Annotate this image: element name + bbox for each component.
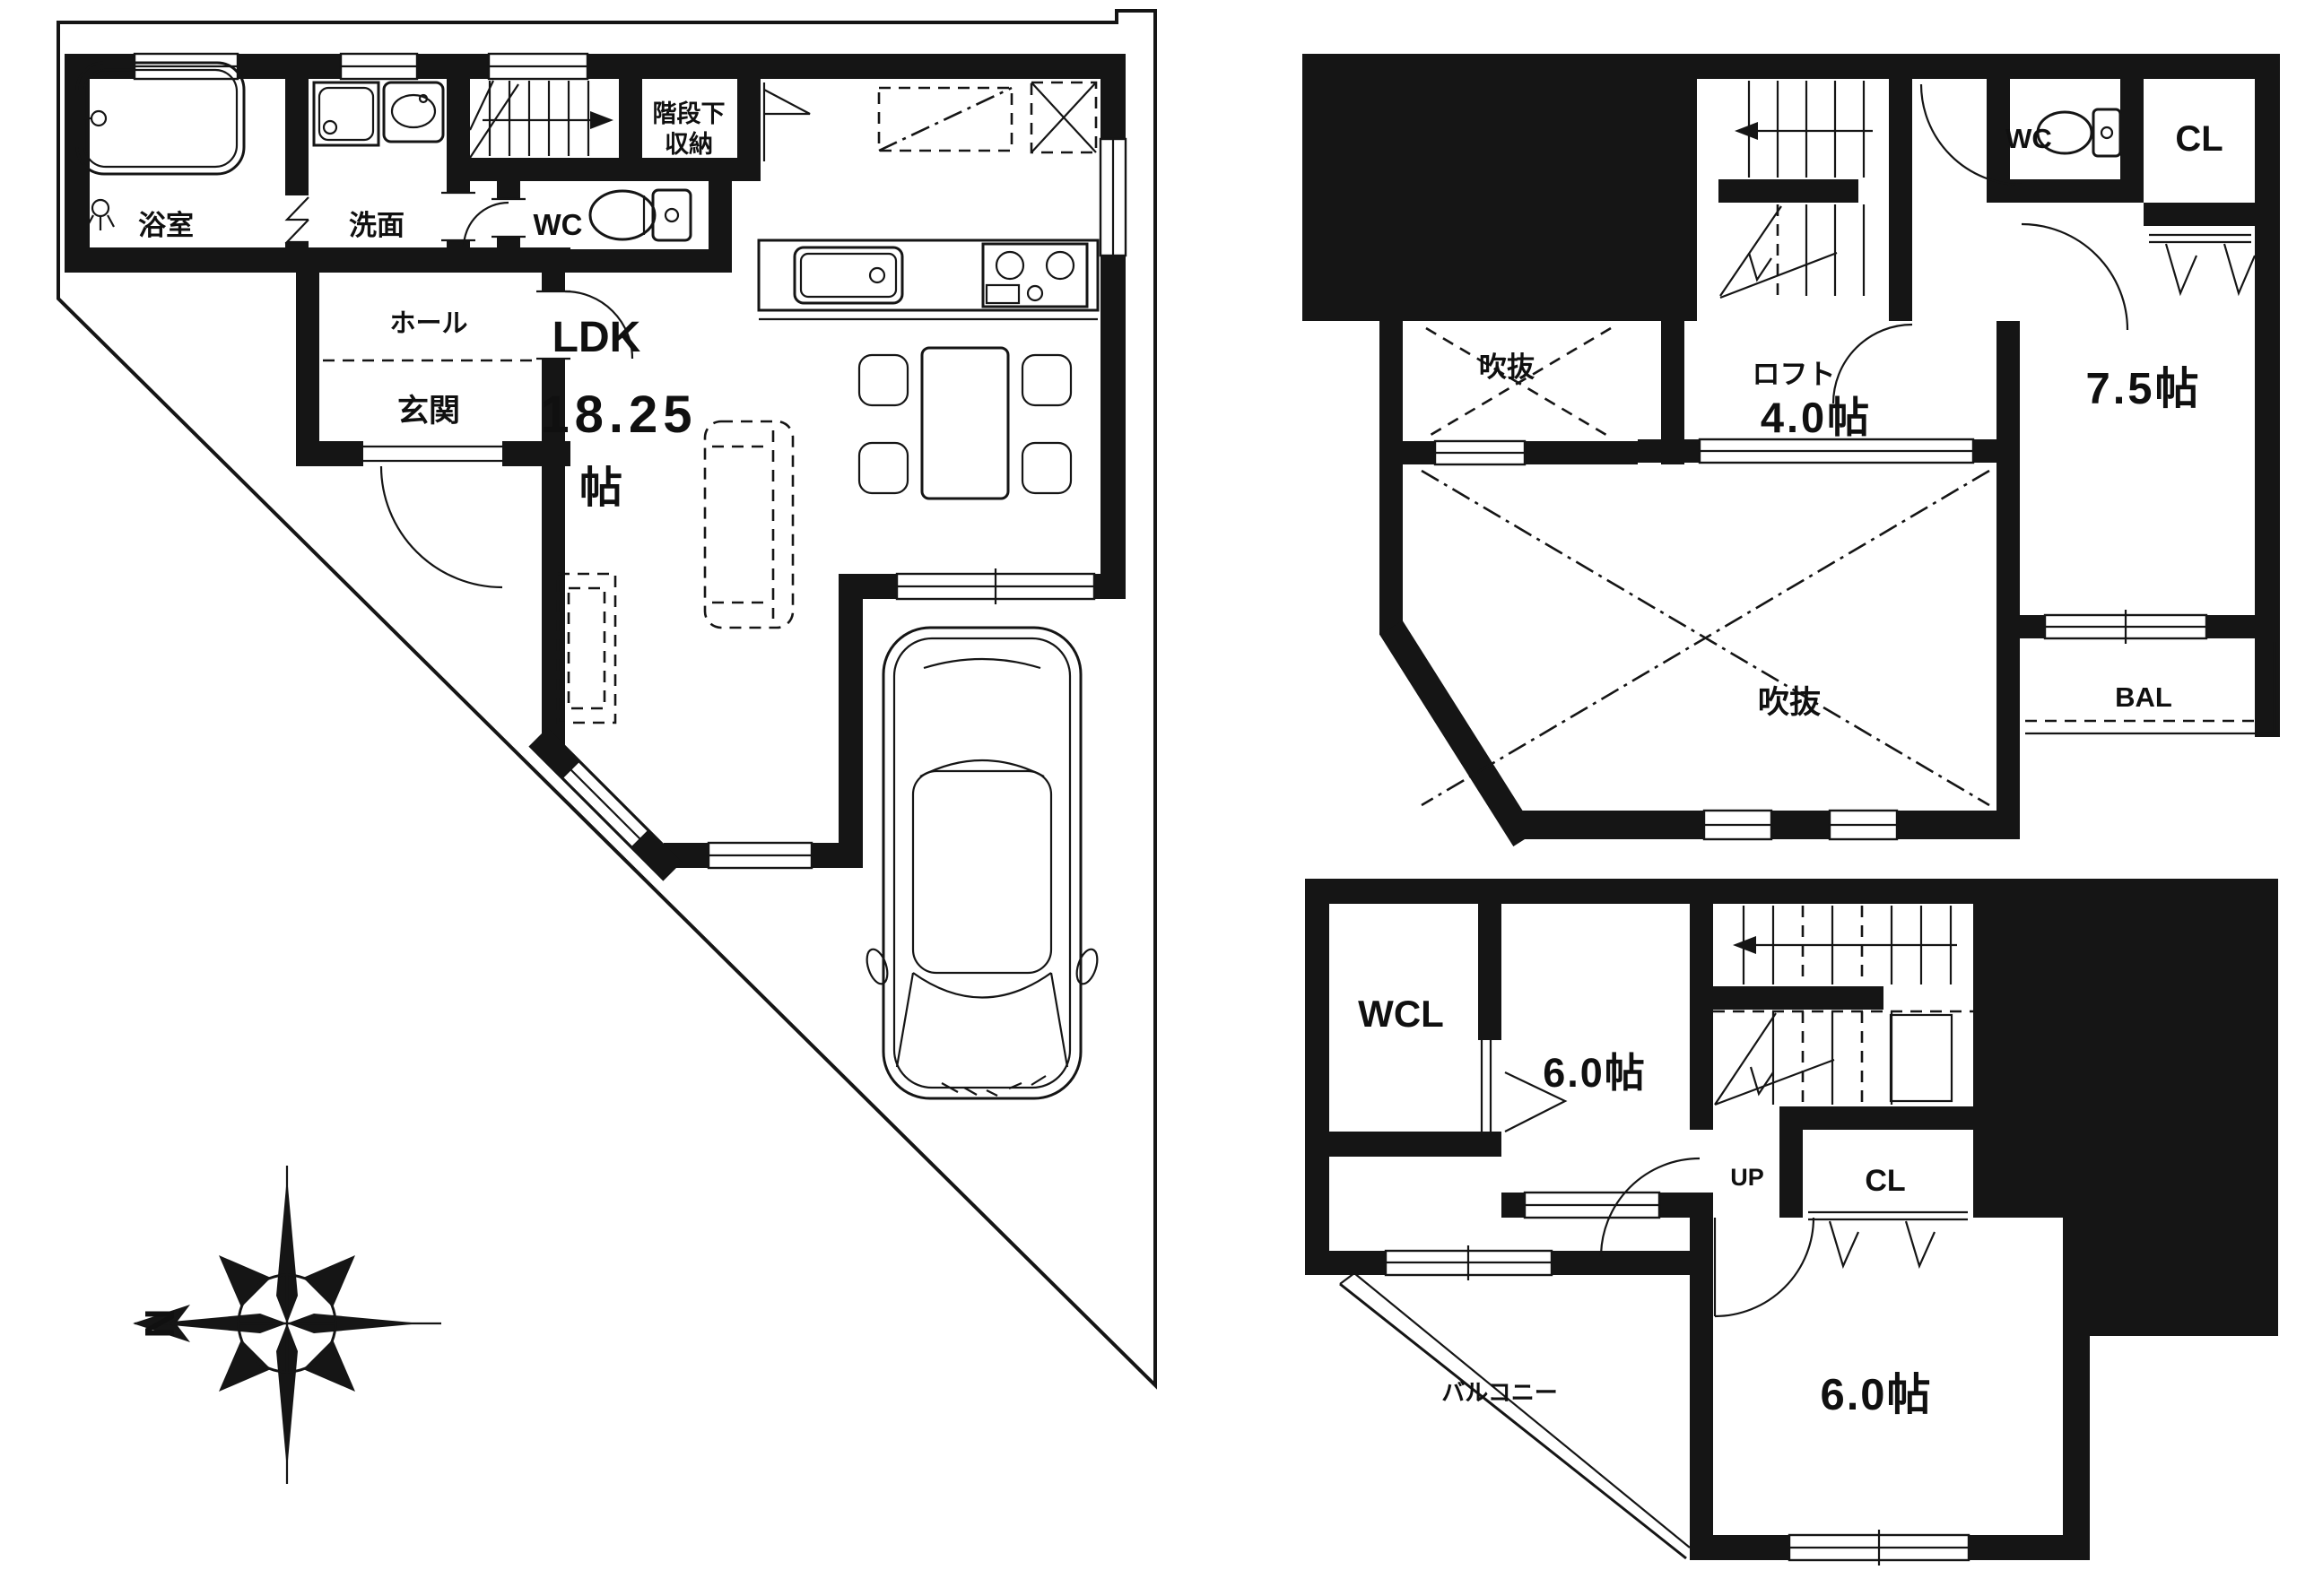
kitchen-counter xyxy=(759,240,1098,319)
site-boundary xyxy=(58,11,1155,1385)
car-top-view xyxy=(863,628,1100,1098)
chair xyxy=(1022,443,1071,493)
window xyxy=(1525,1193,1659,1218)
window xyxy=(1704,811,1771,839)
first-floor-plan: N 浴室 洗面 WC 階段下 収納 ホール 玄関 LDK 18.25 帖 xyxy=(58,11,1155,1484)
room-label-75: 7.5帖 xyxy=(2085,365,2201,413)
room-label-wcl: WCL xyxy=(1358,993,1444,1035)
window xyxy=(562,761,648,847)
void-cross-marks xyxy=(1422,328,1989,805)
room-label-wc: WC xyxy=(534,208,583,241)
solid-black-area xyxy=(1302,54,1697,321)
stairs-1f xyxy=(470,81,613,158)
room-label-cl-2f: CL xyxy=(1865,1164,1905,1198)
second-floor-plan: WCL 6.0帖 UP CL バルコニー 6.0帖 xyxy=(1305,879,2278,1566)
shower-box-icon xyxy=(314,82,378,145)
entrance-door-arc xyxy=(381,466,502,587)
room-label-ldk-unit: 帖 xyxy=(579,464,622,512)
room-label-void-bottom: 吹抜 xyxy=(1758,685,1821,720)
door-arc-room-s xyxy=(1715,1218,1814,1316)
chair xyxy=(1022,355,1071,405)
room-label-void-top: 吹抜 xyxy=(1479,351,1535,383)
upper-cabinet-dashed xyxy=(879,82,1096,152)
window xyxy=(897,568,1094,604)
solid-black-area xyxy=(1973,879,2278,1193)
window xyxy=(1435,441,1525,464)
compass-rose: N xyxy=(133,1166,441,1484)
window xyxy=(135,54,238,79)
window xyxy=(1700,439,1973,463)
window xyxy=(1789,1530,1969,1566)
room-label-loft-size: 4.0帖 xyxy=(1761,394,1872,441)
window xyxy=(489,54,587,79)
window xyxy=(1386,1245,1552,1280)
room-label-6n: 6.0帖 xyxy=(1543,1050,1647,1096)
window xyxy=(341,54,417,79)
doors-loft xyxy=(1833,84,2127,403)
shower-icon xyxy=(87,200,114,230)
room-label-ldk-size: 18.25 xyxy=(540,386,697,444)
dining-table xyxy=(922,348,1008,499)
folding-door-bath xyxy=(287,197,309,242)
vanity-sink-icon xyxy=(384,82,443,142)
room-label-storage-1: 階段下 xyxy=(653,100,726,127)
room-label-balcony: バルコニー xyxy=(1441,1379,1557,1406)
door-arc-room75 xyxy=(2022,224,2127,330)
dining-set xyxy=(859,348,1071,499)
solid-black-area xyxy=(2090,1193,2278,1336)
chamfer-wall xyxy=(1391,628,1525,839)
stair-direction-mark xyxy=(1749,253,1771,280)
door-arc-loft xyxy=(1833,325,1912,403)
room-label-6s: 6.0帖 xyxy=(1820,1371,1932,1419)
room-label-wc-loft: WC xyxy=(2005,123,2052,154)
room-label-up: UP xyxy=(1730,1164,1764,1191)
kitchen-sink-icon xyxy=(795,247,902,303)
room-label-wash: 洗面 xyxy=(349,210,405,241)
room-label-bal: BAL xyxy=(2115,681,2172,713)
room-label-hall: ホール xyxy=(389,309,467,338)
tv-board xyxy=(558,574,615,723)
storage-door xyxy=(764,82,810,161)
room-label-ldk: LDK xyxy=(552,314,641,361)
stove-icon xyxy=(983,244,1087,307)
closet-hanger-icon xyxy=(1808,1212,1968,1266)
closet-hanger-icon xyxy=(2149,235,2255,293)
room-label-loft: ロフト xyxy=(1753,359,1836,390)
sofa xyxy=(705,421,793,628)
room-label-storage-2: 収納 xyxy=(665,130,713,158)
chair xyxy=(859,443,908,493)
chair xyxy=(859,355,908,405)
room-label-cl-loft: CL xyxy=(2175,119,2223,159)
walls-2f xyxy=(1305,879,2278,1560)
window xyxy=(1830,811,1897,839)
window xyxy=(2045,610,2206,644)
loft-floor-plan: 吹抜 ロフト 4.0帖 7.5帖 WC CL 吹抜 BAL xyxy=(1302,54,2280,839)
room-label-entrance: 玄関 xyxy=(397,394,460,429)
toilet-icon xyxy=(590,190,691,240)
window xyxy=(1100,139,1126,256)
compass-north-label: N xyxy=(136,1308,183,1338)
side-mirror xyxy=(1073,947,1100,986)
balcony-2f xyxy=(1340,1273,1690,1558)
windows-loft xyxy=(1435,439,2206,839)
window xyxy=(709,843,812,868)
floorplan-sheet: N 浴室 洗面 WC 階段下 収納 ホール 玄関 LDK 18.25 帖 xyxy=(0,0,2314,1596)
side-mirror xyxy=(863,947,891,986)
room-label-bath: 浴室 xyxy=(138,210,194,241)
